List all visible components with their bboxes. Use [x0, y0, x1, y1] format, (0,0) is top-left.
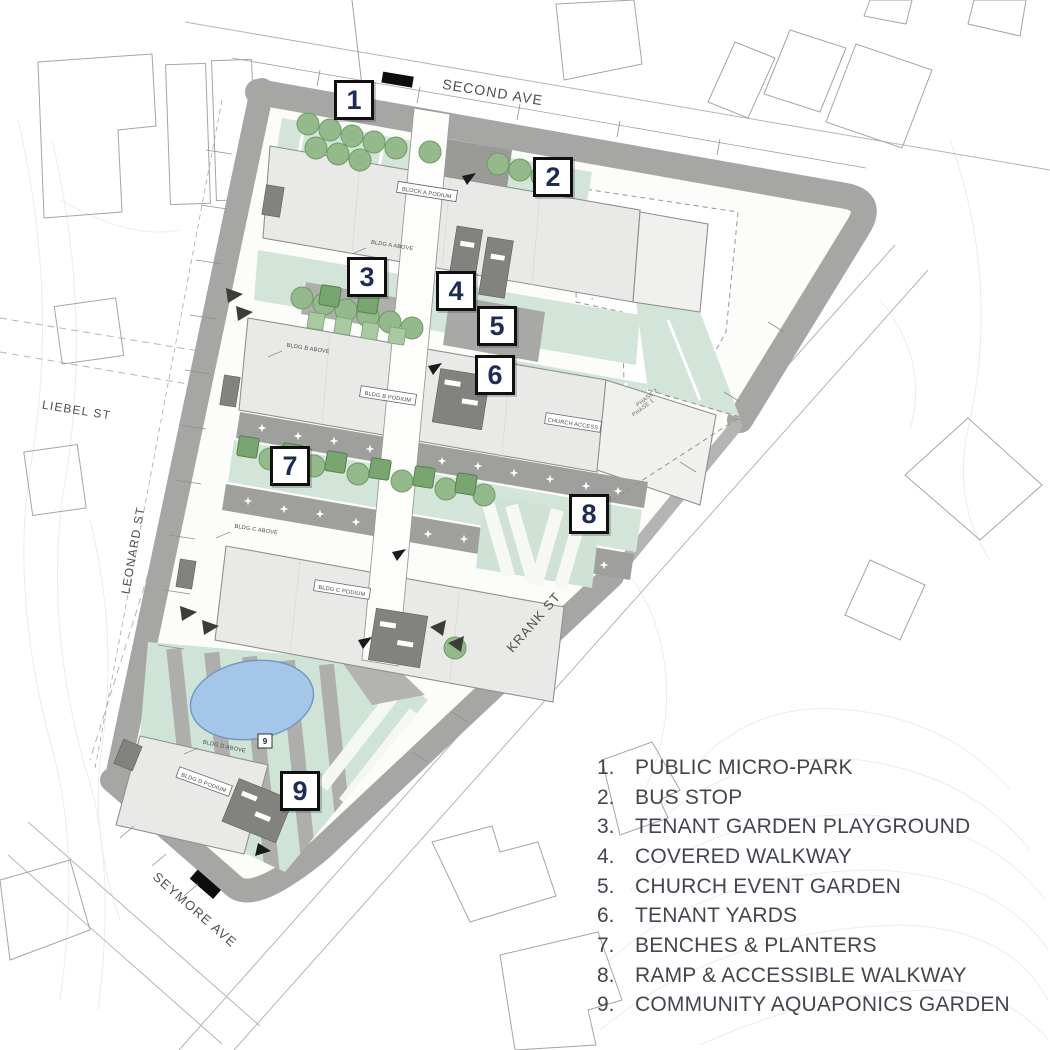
legend-item-label: TENANT GARDEN PLAYGROUND	[635, 815, 970, 839]
callout-9: 9	[280, 771, 320, 811]
callout-3: 3	[347, 257, 387, 297]
legend-item-4: 4. COVERED WALKWAY	[597, 842, 1049, 872]
legend: 1. PUBLIC MICRO-PARK 2. BUS STOP 3. TENA…	[597, 753, 1049, 1020]
legend-item-7: 7. BENCHES & PLANTERS	[597, 931, 1049, 961]
block-a-annex	[633, 212, 708, 312]
callout-7: 7	[270, 446, 310, 486]
legend-item-number: 7.	[597, 934, 635, 958]
legend-item-number: 6.	[597, 904, 635, 928]
callout-6: 6	[475, 355, 515, 395]
callout-2: 2	[533, 157, 573, 197]
legend-item-2: 2. BUS STOP	[597, 783, 1049, 813]
legend-item-label: PUBLIC MICRO-PARK	[635, 756, 853, 780]
legend-item-label: COVERED WALKWAY	[635, 845, 852, 869]
legend-item-label: COMMUNITY AQUAPONICS GARDEN	[635, 993, 1010, 1017]
legend-item-label: RAMP & ACCESSIBLE WALKWAY	[635, 964, 967, 988]
legend-item-number: 9.	[597, 993, 635, 1017]
keynote-9-text: 9	[263, 737, 268, 746]
legend-item-label: BENCHES & PLANTERS	[635, 934, 877, 958]
street-label-leonard-st: LEONARD ST	[118, 505, 147, 595]
site-plan-page: SECOND AVE LIEBEL ST LEONARD ST SEYMORE …	[0, 0, 1050, 1050]
legend-item-number: 5.	[597, 875, 635, 899]
legend-item-number: 4.	[597, 845, 635, 869]
legend-item-8: 8. RAMP & ACCESSIBLE WALKWAY	[597, 961, 1049, 991]
legend-item-3: 3. TENANT GARDEN PLAYGROUND	[597, 812, 1049, 842]
callout-8: 8	[569, 494, 609, 534]
callout-1: 1	[334, 80, 374, 120]
legend-item-number: 2.	[597, 786, 635, 810]
keynote-9-marker: 9	[258, 734, 272, 748]
legend-item-label: TENANT YARDS	[635, 904, 797, 928]
legend-item-9: 9. COMMUNITY AQUAPONICS GARDEN	[597, 991, 1049, 1021]
legend-item-label: BUS STOP	[635, 786, 742, 810]
street-label-liebel-st: LIEBEL ST	[41, 398, 112, 423]
legend-item-1: 1. PUBLIC MICRO-PARK	[597, 753, 1049, 783]
legend-item-number: 8.	[597, 964, 635, 988]
bus-stop-bar-top	[381, 72, 413, 88]
legend-item-label: CHURCH EVENT GARDEN	[635, 875, 901, 899]
legend-item-6: 6. TENANT YARDS	[597, 901, 1049, 931]
legend-item-5: 5. CHURCH EVENT GARDEN	[597, 872, 1049, 902]
callout-5: 5	[477, 306, 517, 346]
callout-4: 4	[436, 271, 476, 311]
legend-item-number: 1.	[597, 756, 635, 780]
legend-item-number: 3.	[597, 815, 635, 839]
